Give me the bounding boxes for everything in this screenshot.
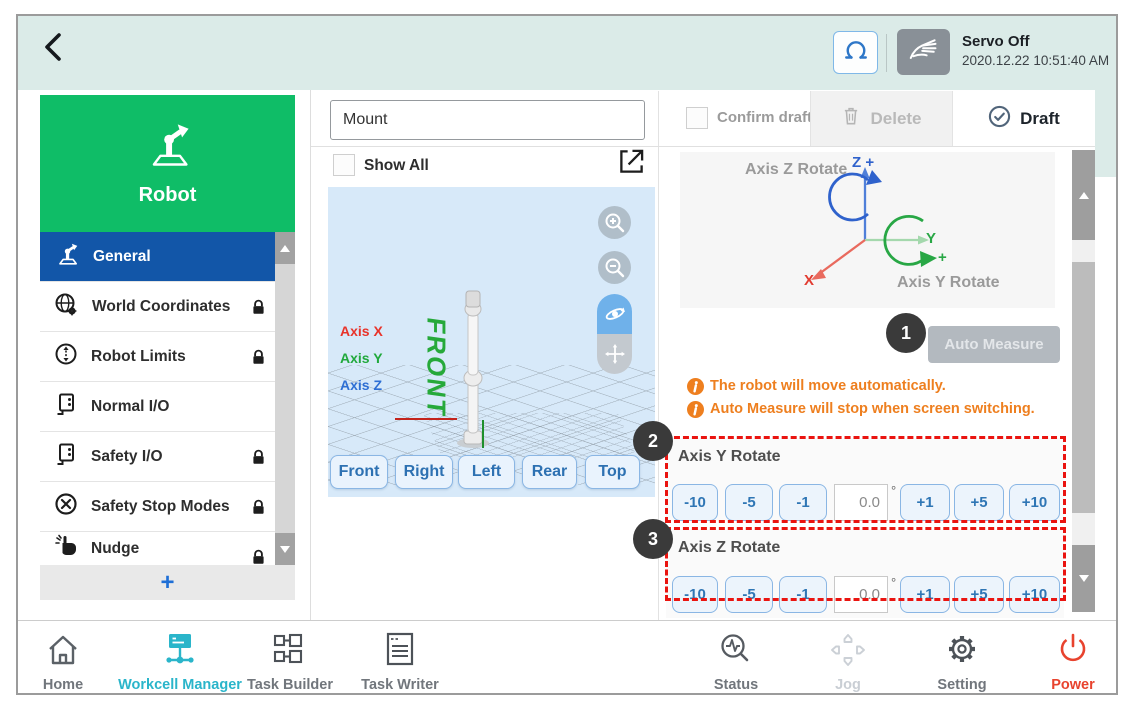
jog-icon[interactable] <box>828 631 868 674</box>
triangle-down-icon <box>280 546 290 553</box>
confirm-draft-label: Confirm draft <box>717 109 812 126</box>
axis-z-minus-5-button[interactable]: -5 <box>725 576 773 613</box>
confirm-draft-checkbox[interactable] <box>686 107 708 129</box>
diagram-axis-z-rotate-label: Axis Z Rotate <box>745 161 847 179</box>
view-mode-toggle <box>597 294 632 374</box>
tool-gripper-button[interactable] <box>833 31 878 74</box>
axis-y-minus-5-button[interactable]: -5 <box>725 484 773 521</box>
info-icon <box>687 401 704 418</box>
scroll-up-button[interactable] <box>275 232 295 264</box>
move-icon <box>603 342 627 366</box>
sidebar-item-label: World Coordinates <box>92 298 230 316</box>
io-icon <box>54 442 78 471</box>
draft-label: Draft <box>1020 109 1060 129</box>
axis-z-rotate-title: Axis Z Rotate <box>678 539 780 557</box>
nav-jog[interactable]: Jog <box>835 677 861 693</box>
axis-y-rotate-title: Axis Y Rotate <box>678 448 781 466</box>
robot-arm-icon <box>142 121 194 174</box>
axis-z-plus-10-button[interactable]: +10 <box>1009 576 1060 613</box>
status-timestamp: 2020.12.22 10:51:40 AM <box>962 53 1109 68</box>
scroll-down-button[interactable] <box>275 533 295 565</box>
lock-icon <box>250 348 267 371</box>
expand-viewer-button[interactable] <box>616 149 646 179</box>
home-icon[interactable] <box>43 631 83 674</box>
sidebar-item-safety-io[interactable]: Safety I/O <box>40 432 275 482</box>
status-icon[interactable] <box>716 631 756 674</box>
sidebar-header-robot: Robot <box>40 95 295 232</box>
panel-scrollbar <box>1072 150 1095 612</box>
axis-y-plus-10-button[interactable]: +10 <box>1009 484 1060 521</box>
nav-home[interactable]: Home <box>43 677 83 693</box>
lock-icon <box>250 548 267 565</box>
auto-measure-note: The robot will move automatically. <box>710 378 946 394</box>
scroll-down-button[interactable] <box>1072 545 1095 612</box>
sidebar-item-normal-io[interactable]: Normal I/O <box>40 382 275 432</box>
axis-y-value-input[interactable] <box>834 484 888 521</box>
show-all-checkbox[interactable] <box>333 154 355 176</box>
top-bar-corner <box>1095 90 1116 177</box>
sidebar-item-general[interactable]: General <box>40 232 275 282</box>
view-front-button[interactable]: Front <box>330 455 388 489</box>
pan-view-button[interactable] <box>597 334 632 374</box>
axis-z-plus-5-button[interactable]: +5 <box>954 576 1004 613</box>
axis-y-plus-5-button[interactable]: +5 <box>954 484 1004 521</box>
auto-measure-note: Auto Measure will stop when screen switc… <box>710 401 1035 417</box>
plus-icon: + <box>160 569 174 597</box>
workcell-manager-icon[interactable] <box>160 631 200 674</box>
step-1-badge: 1 <box>886 313 926 353</box>
axis-y-minus-1-button[interactable]: -1 <box>779 484 827 521</box>
diagram-y-label: Y <box>926 230 936 247</box>
io-icon <box>54 392 78 421</box>
axis-z-minus-1-button[interactable]: -1 <box>779 576 827 613</box>
nav-task-writer[interactable]: Task Writer <box>361 677 439 693</box>
delete-label: Delete <box>870 109 921 129</box>
task-writer-icon[interactable] <box>380 631 420 674</box>
axis-z-label: Axis Z <box>340 377 382 393</box>
sidebar-item-label: Robot Limits <box>91 348 186 366</box>
axis-z-line <box>482 420 484 448</box>
delete-button[interactable]: Delete <box>810 91 953 146</box>
view-left-button[interactable]: Left <box>458 455 515 489</box>
degree-unit: ° <box>891 483 896 498</box>
orbit-icon <box>603 303 627 325</box>
zoom-out-icon <box>603 256 627 280</box>
axis-x-line <box>395 418 457 420</box>
axis-y-plus-1-button[interactable]: +1 <box>900 484 950 521</box>
world-coordinates-icon <box>54 292 79 322</box>
zoom-in-button[interactable] <box>598 206 631 239</box>
app-window: Servo Off 2020.12.22 10:51:40 AM Robot <box>0 0 1134 709</box>
sidebar-item-robot-limits[interactable]: Robot Limits <box>40 332 275 382</box>
view-rear-button[interactable]: Rear <box>522 455 577 489</box>
triangle-up-icon <box>1079 192 1089 199</box>
sidebar-item-label: Nudge <box>91 540 139 558</box>
nav-task-builder[interactable]: Task Builder <box>247 677 333 693</box>
axis-z-plus-1-button[interactable]: +1 <box>900 576 950 613</box>
back-button[interactable] <box>36 30 70 68</box>
nav-power[interactable]: Power <box>1051 677 1095 693</box>
step-3-badge: 3 <box>633 519 673 559</box>
triangle-down-icon <box>1079 575 1089 582</box>
robot-3d-viewport[interactable]: Axis X Axis Y Axis Z FRONT <box>328 187 655 497</box>
zoom-in-icon <box>603 211 627 235</box>
axis-y-label: Axis Y <box>340 350 383 366</box>
nudge-hand-icon <box>54 534 78 563</box>
sidebar-title: Robot <box>139 184 197 207</box>
setting-gear-icon[interactable] <box>942 631 982 674</box>
back-chevron-icon <box>42 32 64 67</box>
diagram-y-plus-label: + <box>938 249 947 266</box>
task-builder-icon[interactable] <box>270 631 310 674</box>
show-all-label: Show All <box>364 157 429 175</box>
add-workcell-item-button[interactable]: + <box>40 565 295 600</box>
axis-z-value-input[interactable] <box>834 576 888 613</box>
triangle-up-icon <box>280 245 290 252</box>
nav-status[interactable]: Status <box>714 677 758 693</box>
auto-measure-button[interactable]: Auto Measure <box>928 326 1060 363</box>
diagram-axis-y-rotate-label: Axis Y Rotate <box>897 274 1000 292</box>
toolbar-divider <box>311 146 1095 147</box>
robot-arm-icon <box>54 242 80 271</box>
info-icon <box>687 378 704 395</box>
sidebar-item-label: Normal I/O <box>91 398 169 416</box>
check-circle-icon <box>988 105 1011 133</box>
lock-icon <box>250 298 267 321</box>
sidebar-divider <box>310 90 311 620</box>
front-floor-marker: FRONT <box>421 305 452 429</box>
top-bar-divider <box>886 34 887 72</box>
sidebar-item-world-coordinates[interactable]: World Coordinates <box>40 282 275 332</box>
lock-icon <box>250 448 267 471</box>
sidebar-item-label: Safety Stop Modes <box>91 498 230 516</box>
view-right-button[interactable]: Right <box>395 455 453 489</box>
lock-icon <box>250 498 267 521</box>
rotate-view-button[interactable] <box>597 294 632 334</box>
gripper-icon <box>841 36 871 69</box>
step-2-badge: 2 <box>633 421 673 461</box>
axis-y-minus-10-button[interactable]: -10 <box>672 484 718 521</box>
direct-teach-button[interactable] <box>897 29 950 75</box>
scrollbar-thumb[interactable] <box>1072 262 1095 513</box>
top-bar <box>18 16 1116 90</box>
robot-limits-icon <box>54 342 78 371</box>
power-icon[interactable] <box>1053 631 1093 674</box>
diagram-z-label: Z + <box>852 154 874 171</box>
expand-icon <box>618 148 645 180</box>
sidebar-item-label: General <box>93 248 151 266</box>
axis-x-label: Axis X <box>340 323 383 339</box>
diagram-x-label: X <box>804 272 814 289</box>
zoom-out-button[interactable] <box>598 251 631 284</box>
sidebar-item-safety-stop-modes[interactable]: Safety Stop Modes <box>40 482 275 532</box>
stop-modes-icon <box>54 492 78 521</box>
trash-icon <box>841 105 861 132</box>
axis-z-minus-10-button[interactable]: -10 <box>672 576 718 613</box>
sidebar-item-nudge[interactable]: Nudge <box>40 532 275 565</box>
sidebar-item-label: Safety I/O <box>91 448 163 466</box>
item-name-input[interactable] <box>330 100 645 140</box>
nav-workcell-manager[interactable]: Workcell Manager <box>118 677 242 693</box>
nav-setting[interactable]: Setting <box>937 677 986 693</box>
servo-status: Servo Off <box>962 33 1030 50</box>
view-top-button[interactable]: Top <box>585 455 640 489</box>
hand-icon <box>906 35 942 70</box>
scroll-up-button[interactable] <box>1072 150 1095 240</box>
draft-button[interactable]: Draft <box>953 91 1095 146</box>
nav-divider <box>18 620 1116 621</box>
degree-unit: ° <box>891 575 896 590</box>
sidebar-scrollbar <box>275 232 295 565</box>
